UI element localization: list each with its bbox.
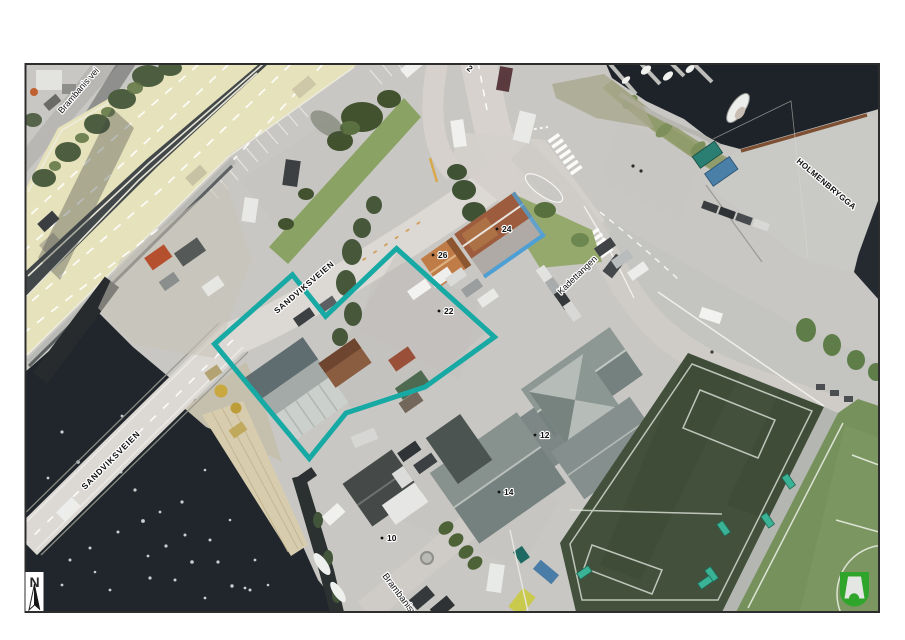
svg-text:24: 24 (502, 224, 512, 234)
svg-text:12: 12 (540, 430, 550, 440)
svg-text:26: 26 (438, 250, 448, 260)
svg-text:14: 14 (504, 487, 514, 497)
svg-text:22: 22 (444, 306, 454, 316)
svg-text:10: 10 (387, 533, 397, 543)
